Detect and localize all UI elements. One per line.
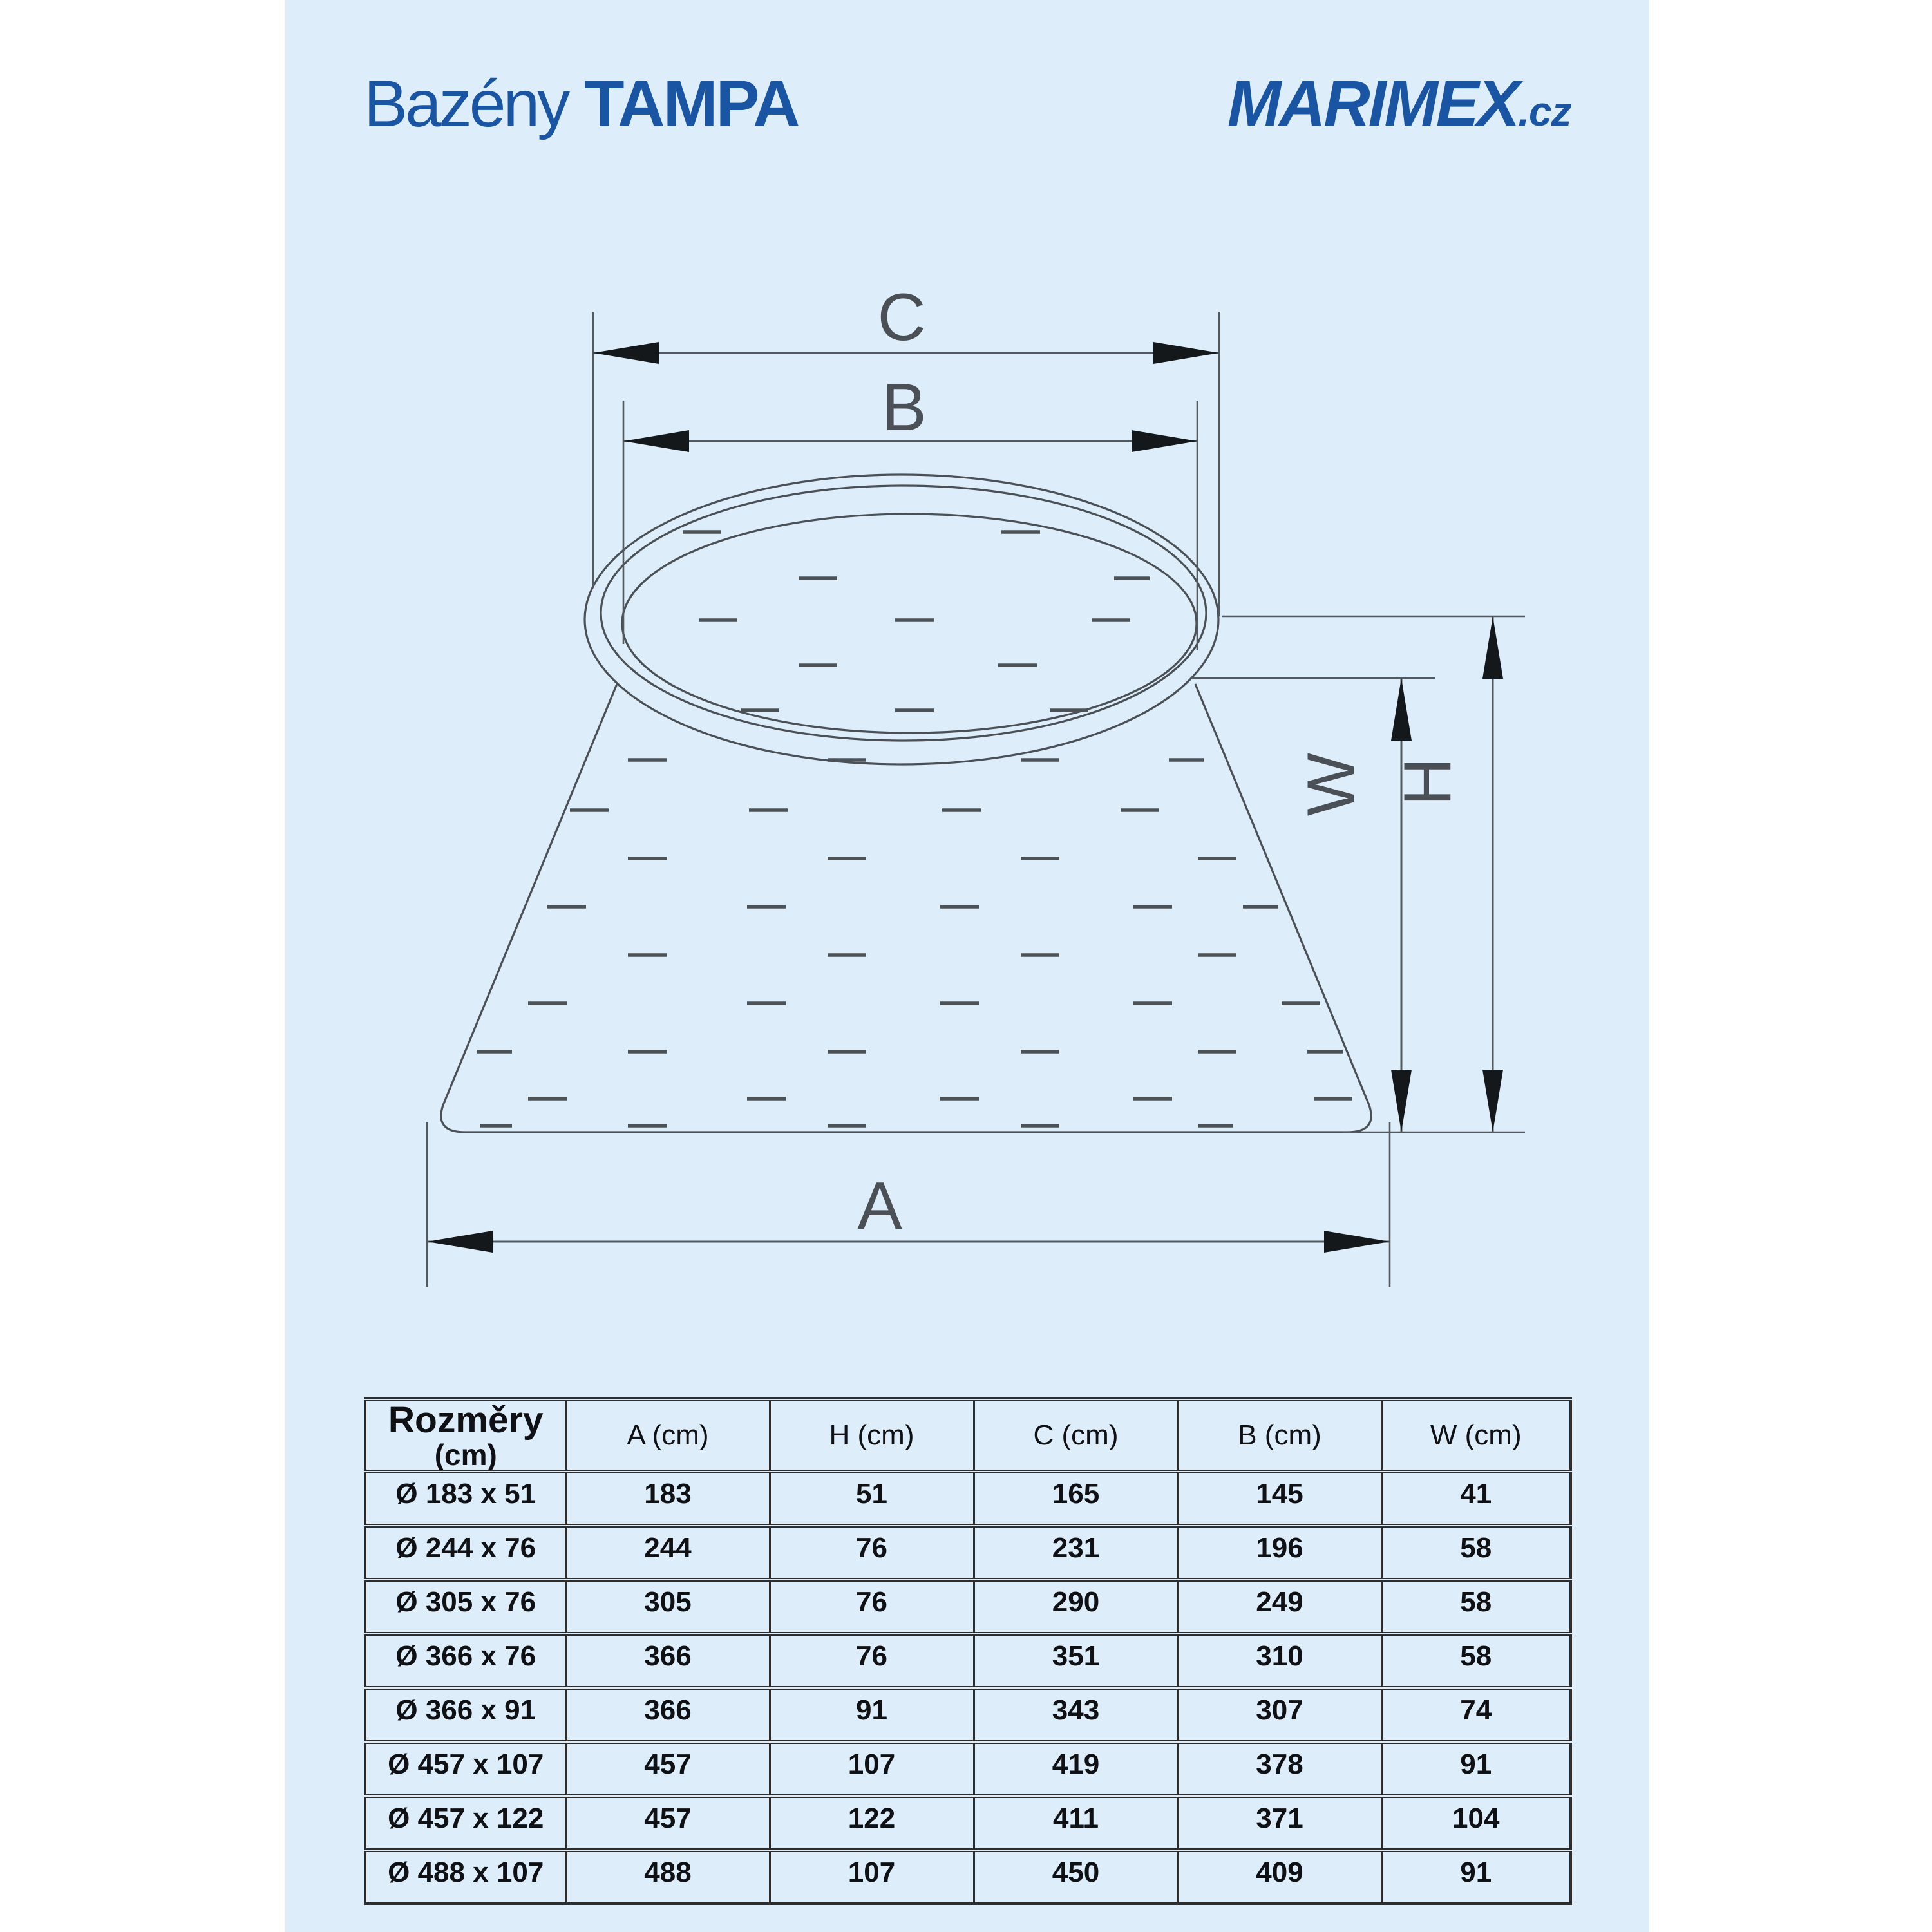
table-row: Ø 183 x 51 183 51 165 145 41 [365, 1472, 1571, 1526]
cell-c: 450 [974, 1850, 1178, 1904]
cell-size: Ø 457 x 122 [365, 1796, 566, 1850]
table-header-rozmery: Rozměry (cm) [365, 1399, 566, 1472]
cell-h: 91 [770, 1688, 974, 1742]
cell-h: 107 [770, 1850, 974, 1904]
cell-size: Ø 244 x 76 [365, 1526, 566, 1580]
cell-size: Ø 305 x 76 [365, 1580, 566, 1634]
cell-h: 107 [770, 1742, 974, 1796]
dim-label-a: A [857, 1169, 902, 1244]
cell-c: 411 [974, 1796, 1178, 1850]
cell-b: 145 [1178, 1472, 1381, 1526]
cell-w: 58 [1381, 1634, 1571, 1688]
dim-w-arrow-top [1391, 678, 1412, 741]
dim-h-arrow-bottom [1482, 1070, 1503, 1132]
table-header-c: C (cm) [974, 1399, 1178, 1472]
table-row: Ø 457 x 122 457 122 411 371 104 [365, 1796, 1571, 1850]
dimensions-table: Rozměry (cm) A (cm) H (cm) C (cm) B (cm)… [364, 1397, 1572, 1905]
cell-w: 58 [1381, 1526, 1571, 1580]
cell-h: 76 [770, 1634, 974, 1688]
dim-label-b: B [882, 370, 926, 445]
cell-w: 58 [1381, 1580, 1571, 1634]
cell-h: 122 [770, 1796, 974, 1850]
dim-h-arrow-top [1482, 616, 1503, 679]
dim-a-arrow-left [427, 1231, 493, 1253]
cell-c: 343 [974, 1688, 1178, 1742]
cell-size: Ø 488 x 107 [365, 1850, 566, 1904]
cell-a: 457 [566, 1742, 770, 1796]
cell-b: 249 [1178, 1580, 1381, 1634]
cell-size: Ø 457 x 107 [365, 1742, 566, 1796]
ring-middle-ellipse [601, 486, 1206, 741]
cell-w: 41 [1381, 1472, 1571, 1526]
cell-c: 290 [974, 1580, 1178, 1634]
cell-h: 76 [770, 1580, 974, 1634]
cell-a: 305 [566, 1580, 770, 1634]
ring-inner-ellipse [622, 514, 1197, 733]
table-header-a: A (cm) [566, 1399, 770, 1472]
cell-b: 310 [1178, 1634, 1381, 1688]
dim-c-arrow-right [1153, 342, 1219, 364]
cell-a: 244 [566, 1526, 770, 1580]
table-row: Ø 244 x 76 244 76 231 196 58 [365, 1526, 1571, 1580]
dim-b-arrow-right [1132, 430, 1197, 452]
cell-a: 183 [566, 1472, 770, 1526]
table-header-w: W (cm) [1381, 1399, 1571, 1472]
cell-a: 488 [566, 1850, 770, 1904]
cell-c: 351 [974, 1634, 1178, 1688]
cell-c: 419 [974, 1742, 1178, 1796]
table-row: Ø 366 x 91 366 91 343 307 74 [365, 1688, 1571, 1742]
dim-a-arrow-right [1324, 1231, 1390, 1253]
table-header-title: Rozměry [366, 1401, 565, 1440]
cell-w: 74 [1381, 1688, 1571, 1742]
cell-w: 104 [1381, 1796, 1571, 1850]
cell-c: 165 [974, 1472, 1178, 1526]
table-header-b: B (cm) [1178, 1399, 1381, 1472]
cell-size: Ø 366 x 91 [365, 1688, 566, 1742]
cell-size: Ø 183 x 51 [365, 1472, 566, 1526]
cell-size: Ø 366 x 76 [365, 1634, 566, 1688]
dim-label-c: C [877, 280, 925, 355]
cell-w: 91 [1381, 1850, 1571, 1904]
cell-h: 51 [770, 1472, 974, 1526]
cell-w: 91 [1381, 1742, 1571, 1796]
dim-label-w: W [1294, 753, 1368, 816]
table-row: Ø 305 x 76 305 76 290 249 58 [365, 1580, 1571, 1634]
table-header-h: H (cm) [770, 1399, 974, 1472]
cell-c: 231 [974, 1526, 1178, 1580]
dim-w-arrow-bottom [1391, 1070, 1412, 1132]
cell-a: 366 [566, 1634, 770, 1688]
cell-b: 307 [1178, 1688, 1381, 1742]
table-row: Ø 488 x 107 488 107 450 409 91 [365, 1850, 1571, 1904]
cell-a: 457 [566, 1796, 770, 1850]
cell-b: 378 [1178, 1742, 1381, 1796]
cell-b: 409 [1178, 1850, 1381, 1904]
table-row: Ø 366 x 76 366 76 351 310 58 [365, 1634, 1571, 1688]
dim-b-arrow-left [623, 430, 689, 452]
cell-a: 366 [566, 1688, 770, 1742]
cell-h: 76 [770, 1526, 974, 1580]
cell-b: 196 [1178, 1526, 1381, 1580]
dim-c-arrow-left [593, 342, 659, 364]
table-header-row: Rozměry (cm) A (cm) H (cm) C (cm) B (cm)… [365, 1399, 1571, 1472]
table-row: Ø 457 x 107 457 107 419 378 91 [365, 1742, 1571, 1796]
dim-label-h: H [1390, 757, 1465, 806]
table-header-unit: (cm) [366, 1440, 565, 1470]
cell-b: 371 [1178, 1796, 1381, 1850]
liner-texture-dashes [477, 532, 1352, 1126]
